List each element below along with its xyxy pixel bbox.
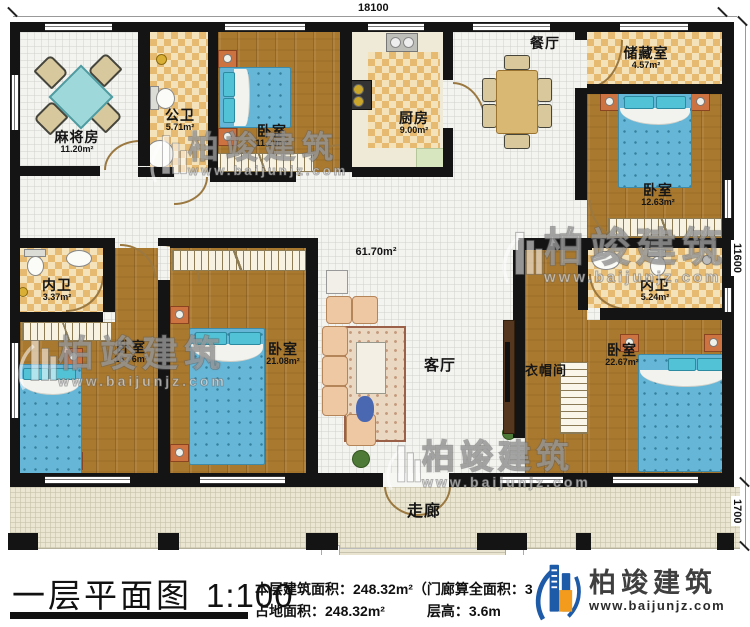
- nightstand: [691, 93, 710, 111]
- plant: [352, 450, 370, 468]
- wall: [138, 32, 150, 166]
- wall: [513, 250, 525, 320]
- window: [368, 23, 424, 31]
- company-logo: 柏竣建筑 www.baijunjz.com: [533, 555, 750, 627]
- room-label-bedroom-bottom-right: 卧室22.67m²: [605, 343, 639, 368]
- sofa: [352, 296, 378, 324]
- room-label-bath-left: 内卫3.37m²: [42, 278, 72, 303]
- room-label-public-bath: 公卫5.71m²: [165, 108, 195, 133]
- window: [724, 288, 732, 312]
- window: [11, 343, 19, 418]
- wall: [352, 167, 453, 177]
- window: [500, 476, 563, 484]
- chair: [537, 78, 552, 102]
- room-label-corridor: 走廊: [407, 503, 441, 521]
- bed: [189, 328, 265, 465]
- window: [613, 476, 698, 484]
- porch-pillar: [306, 533, 338, 550]
- porch-pillar: [477, 533, 527, 550]
- chair: [504, 134, 530, 149]
- bed: [18, 364, 82, 475]
- title-block: 一层平面图1:100 本层建筑面积：248.32m²（门廊算全面积：31.1 占…: [0, 555, 750, 627]
- room-label-cloakroom: 衣帽间: [525, 364, 567, 378]
- wall: [443, 128, 453, 167]
- side-table: [326, 270, 348, 294]
- dining-table: [496, 70, 538, 134]
- floor-porch: [10, 487, 740, 549]
- nightstand: [600, 93, 619, 111]
- wall: [340, 32, 352, 172]
- entry-opening: [383, 473, 449, 487]
- wardrobe: [172, 250, 306, 271]
- wall: [306, 238, 318, 473]
- floor-plan-screenshot: 麻将房11.20m² 公卫5.71m² 卧室11.20m² 厨房9.00m² 餐…: [0, 0, 750, 627]
- wardrobe: [212, 153, 314, 172]
- bed: [618, 92, 692, 188]
- dimension-line-right: [745, 24, 746, 548]
- nightstand: [704, 334, 723, 352]
- window: [200, 476, 285, 484]
- dimension-tick: [737, 16, 748, 27]
- wall: [170, 238, 306, 248]
- wall: [578, 248, 588, 310]
- room-label-bedroom-left: 卧室16.76m²: [114, 340, 148, 365]
- decor: [356, 396, 374, 422]
- room-label-dining: 餐厅: [530, 36, 560, 51]
- sink: [66, 250, 92, 267]
- page-title: 一层平面图1:100: [12, 569, 294, 617]
- room-label-kitchen: 厨房9.00m²: [399, 111, 429, 136]
- plan-info: 本层建筑面积：248.32m²（门廊算全面积：31.1 占地面积：248.32m…: [255, 579, 552, 622]
- logo-building-icon: [533, 560, 585, 622]
- dimension-top: 18100: [355, 2, 392, 14]
- wall: [575, 32, 587, 40]
- tv: [505, 342, 510, 402]
- info-line-2: 占地面积：248.32m²层高：3.6m: [255, 601, 552, 623]
- wall: [158, 280, 170, 473]
- room-label-mahjong: 麻将房11.20m²: [55, 130, 100, 155]
- wall: [443, 32, 453, 80]
- window: [620, 23, 688, 31]
- sofa: [322, 386, 348, 416]
- chair: [537, 104, 552, 128]
- wall: [587, 238, 722, 248]
- coffee-table: [356, 342, 386, 394]
- wall: [158, 238, 170, 246]
- porch-pillar: [158, 533, 179, 550]
- room-label-storage: 储藏室4.57m²: [624, 46, 669, 71]
- window: [724, 180, 732, 218]
- bed: [219, 67, 291, 128]
- sofa: [322, 356, 348, 386]
- room-label-living: 客厅: [424, 358, 456, 375]
- logo-brand-text: 柏竣建筑: [589, 569, 725, 599]
- wall: [10, 238, 115, 248]
- toilet-bowl: [27, 256, 44, 276]
- wardrobe: [22, 322, 112, 341]
- chair: [482, 78, 497, 102]
- room-label-bedroom-top-left: 卧室11.20m²: [255, 124, 288, 149]
- wall: [138, 167, 174, 177]
- porch-pillar: [8, 533, 38, 550]
- chair: [504, 55, 530, 70]
- wall: [210, 172, 296, 182]
- sink: [146, 140, 174, 168]
- wall: [575, 88, 587, 200]
- wall: [20, 166, 100, 176]
- porch-pillar: [717, 533, 734, 550]
- toilet-bowl: [156, 88, 175, 109]
- sofa: [326, 296, 352, 324]
- wall: [103, 248, 115, 312]
- nightstand: [170, 444, 189, 462]
- wall: [600, 308, 722, 320]
- kitchen-sink: [386, 33, 418, 52]
- wall: [208, 32, 218, 172]
- dimension-line-top: [13, 16, 737, 17]
- wardrobe: [608, 218, 724, 237]
- wall: [20, 312, 103, 322]
- dimension-right-upper: 11600: [731, 240, 743, 276]
- chair: [482, 104, 497, 128]
- logo-url-text: www.baijunjz.com: [589, 598, 725, 613]
- floor-drain: [156, 54, 167, 65]
- porch-pillar: [576, 533, 591, 550]
- window: [473, 23, 550, 31]
- wall: [587, 84, 722, 94]
- room-label-bedroom-center: 卧室21.08m²: [266, 342, 300, 367]
- title-underline: [10, 612, 248, 619]
- sink: [592, 251, 620, 270]
- dimension-right-lower: 1700: [731, 496, 743, 526]
- hall-area-label: 61.70m²: [356, 246, 397, 258]
- wall-hook: [702, 255, 712, 265]
- bed: [638, 354, 728, 472]
- info-line-1: 本层建筑面积：248.32m²（门廊算全面积：31.1: [255, 579, 552, 601]
- window: [11, 75, 19, 130]
- toilet-bowl: [650, 256, 666, 276]
- sofa: [322, 326, 348, 356]
- window: [45, 476, 130, 484]
- nightstand: [218, 128, 237, 146]
- nightstand: [218, 50, 237, 68]
- window: [225, 23, 305, 31]
- nightstand: [170, 306, 189, 324]
- room-label-bedroom-top-right: 卧室12.63m²: [641, 183, 675, 208]
- kitchen-mat: [416, 148, 446, 169]
- room-label-bath-right: 内卫5.24m²: [640, 278, 670, 303]
- window: [45, 23, 112, 31]
